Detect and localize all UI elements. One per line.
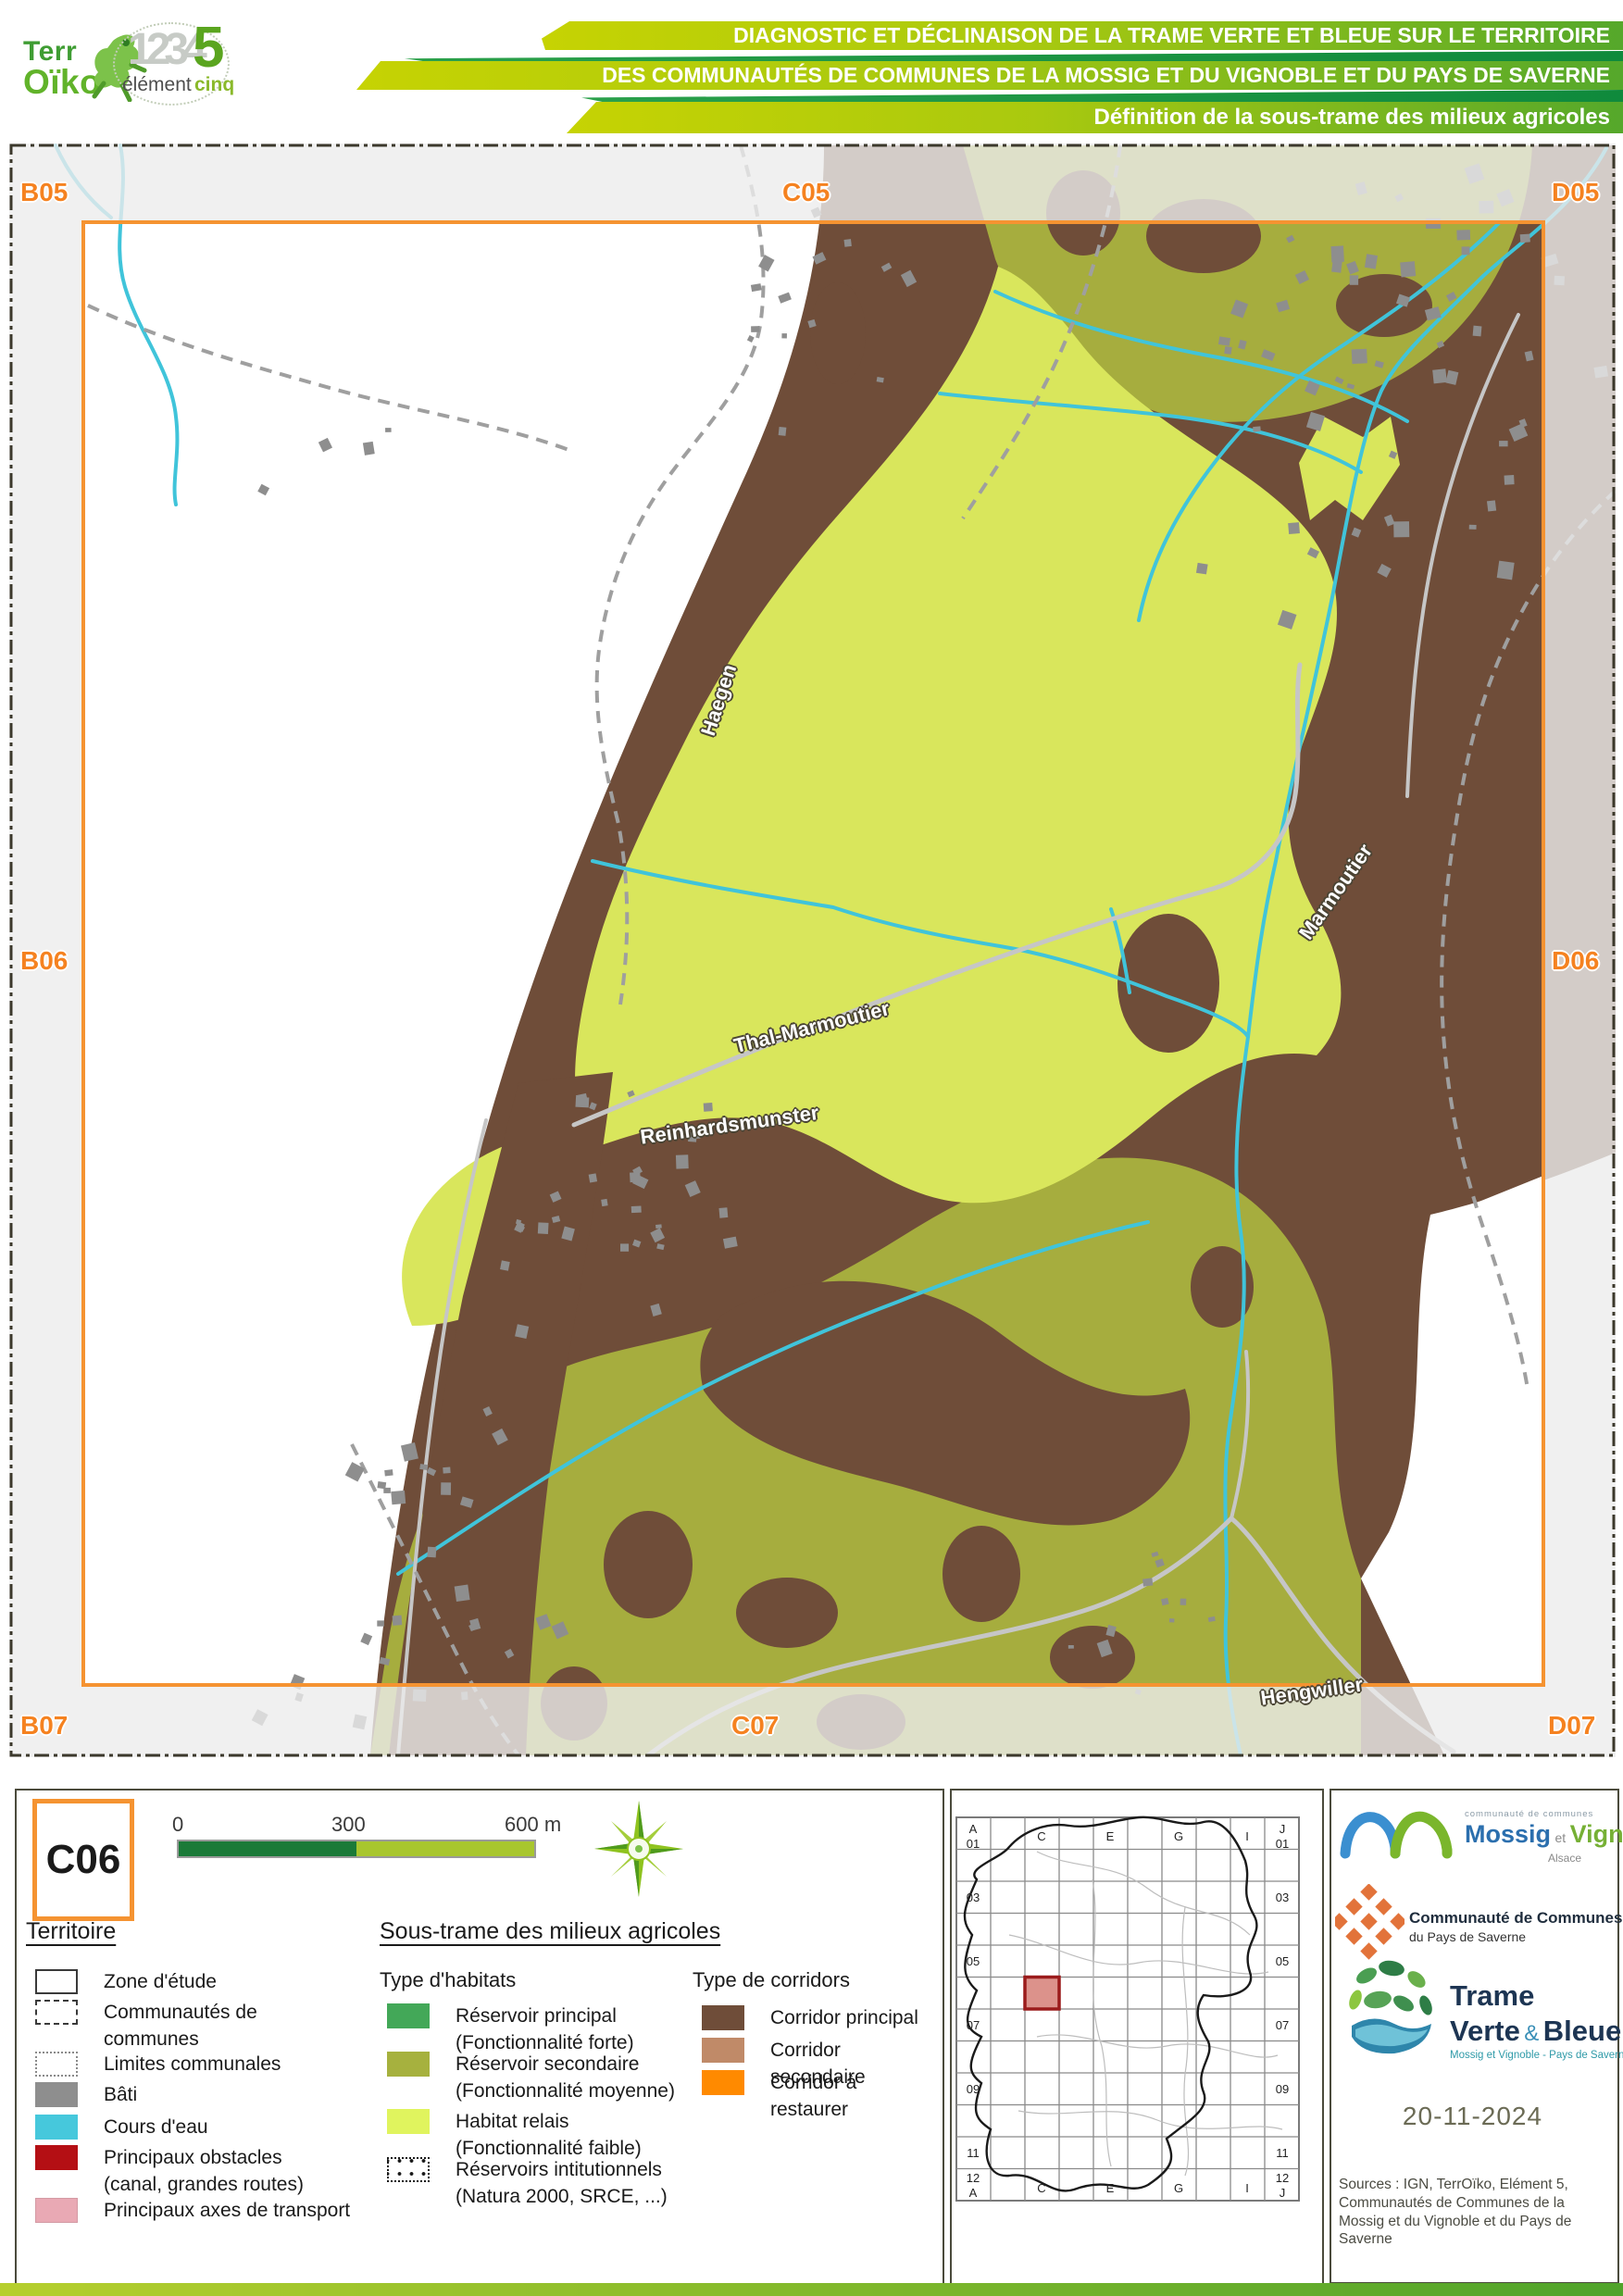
bati-swatch: [35, 2082, 78, 2107]
svg-text:C: C: [1037, 1829, 1045, 1843]
corridors-subheading: Type de corridors: [693, 1968, 850, 1992]
zone-etude-swatch: [35, 1969, 78, 1994]
svg-text:07: 07: [967, 2018, 980, 2032]
tvb-amp: &: [1524, 2021, 1539, 2046]
grid-label-b05: B05: [20, 178, 68, 207]
legend-item-limites: Limites communales: [35, 2052, 350, 2078]
mossig-name: Mossig: [1465, 1820, 1551, 1848]
corridor-principal-swatch: [702, 2005, 744, 2030]
scale-tick-0: 0: [172, 1813, 183, 1837]
svg-text:C: C: [1037, 2181, 1045, 2195]
axes-transport-swatch: [35, 2198, 78, 2223]
tvb-bleue: Bleue: [1543, 2015, 1621, 2047]
legend-item-axes-transport: Principaux axes de transport: [35, 2198, 387, 2225]
reservoir-secondaire-swatch: [387, 2052, 430, 2077]
cours-eau-label: Cours d'eau: [104, 2115, 208, 2141]
svg-text:05: 05: [967, 1954, 980, 1968]
banner-title-3: Définition de la sous-trame des milieux …: [567, 102, 1623, 133]
grid-label-c07: C07: [731, 1711, 779, 1741]
legend-item-habitat-relais: Habitat relais (Fonctionnalité faible): [387, 2109, 683, 2163]
saverne-line2: du Pays de Saverne: [1409, 1929, 1526, 1944]
elementcinq-word1: élément: [122, 74, 192, 96]
legend-item-reservoir-principal: Réservoir principal (Fonctionnalité fort…: [387, 2003, 683, 2057]
obstacles-swatch: [35, 2145, 78, 2170]
legend-item-zone-etude: Zone d'étude: [35, 1969, 350, 1996]
legend-item-reservoirs-institutionnels: Réservoirs intitutionnels (Natura 2000, …: [387, 2157, 683, 2211]
grid-label-b07: B07: [20, 1711, 68, 1741]
svg-text:I: I: [1245, 1829, 1249, 1843]
svg-text:12: 12: [1276, 2171, 1289, 2185]
banner-title-3-text: Définition de la sous-trame des milieux …: [1094, 105, 1623, 131]
tile-code: C06: [46, 1837, 121, 1883]
sources-text: Sources : IGN, TerrOïko, Elément 5, Comm…: [1339, 2176, 1609, 2249]
svg-text:05: 05: [1276, 1954, 1289, 1968]
habitat-relais-label: Habitat relais (Fonctionnalité faible): [456, 2109, 642, 2163]
svg-text:A: A: [969, 2186, 978, 2200]
reservoir-principal-label: Réservoir principal (Fonctionnalité fort…: [456, 2003, 634, 2057]
legend-item-communautes: Communautés de communes: [35, 2000, 313, 2053]
reservoir-secondaire-label: Réservoir secondaire (Fonctionnalité moy…: [456, 2052, 675, 2105]
svg-text:A: A: [969, 1822, 978, 1836]
reservoirs-institutionnels-label: Réservoirs intitutionnels (Natura 2000, …: [456, 2157, 668, 2211]
map-canvas: [9, 143, 1616, 1757]
banner-title-1: DIAGNOSTIC ET DÉCLINAISON DE LA TRAME VE…: [542, 21, 1623, 50]
scale-tick-600: 600 m: [505, 1813, 561, 1837]
corridor-principal-label: Corridor principal: [770, 2005, 918, 2032]
scale-bar-light-segment: [356, 1841, 534, 1856]
svg-text:G: G: [1174, 2181, 1183, 2195]
scale-bar-dark-segment: [179, 1841, 356, 1856]
tvb-logo-icon: [1341, 1955, 1442, 2062]
cours-eau-swatch: [35, 2115, 78, 2140]
inset-highlight-cell: [1025, 1978, 1059, 2010]
legend-item-corridor-principal: Corridor principal: [702, 2005, 933, 2032]
svg-text:E: E: [1106, 1829, 1115, 1843]
svg-text:03: 03: [967, 1890, 980, 1904]
soustrame-heading: Sous-trame des milieux agricoles: [380, 1918, 720, 1945]
tvb-verte: Verte: [1450, 2015, 1520, 2047]
grid-label-d05: D05: [1552, 178, 1599, 207]
scale-bar: [177, 1840, 536, 1858]
svg-text:12: 12: [967, 2171, 980, 2185]
banner-stripe-2: [581, 90, 1623, 102]
mossig-vignoble-logo-icon: [1338, 1805, 1458, 1863]
tvb-subtitle: Mossig et Vignoble - Pays de Saverne: [1450, 2050, 1623, 2061]
territoire-heading: Territoire: [26, 1918, 116, 1945]
map-date: 20-11-2024: [1330, 2102, 1616, 2131]
svg-text:01: 01: [1276, 1837, 1289, 1851]
elementcinq-logo: 1234 5 élément cinq: [120, 17, 231, 106]
elementcinq-word2: cinq: [194, 74, 234, 96]
legend-item-obstacles: Principaux obstacles (canal, grandes rou…: [35, 2145, 368, 2199]
svg-text:E: E: [1106, 2181, 1115, 2195]
legend-item-reservoir-secondaire: Réservoir secondaire (Fonctionnalité moy…: [387, 2052, 683, 2105]
legend-item-corridor-restaurer: Corridor à restaurer: [702, 2070, 933, 2124]
limites-swatch: [35, 2052, 78, 2077]
zone-etude-label: Zone d'étude: [104, 1969, 217, 1996]
svg-text:J: J: [1280, 2186, 1286, 2200]
bati-label: Bâti: [104, 2082, 137, 2109]
footer-bar: [0, 2283, 1623, 2296]
svg-text:09: 09: [967, 2082, 980, 2096]
grid-label-c05: C05: [782, 178, 830, 207]
elementcinq-digits: 1234: [128, 24, 201, 75]
compass-rose-icon: [593, 1801, 685, 1897]
banner-stripe-1: [405, 51, 1623, 61]
banner-title-2-text: DES COMMUNAUTÉS DE COMMUNES DE LA MOSSIG…: [602, 63, 1623, 88]
obstacles-sublabel: (canal, grandes routes): [104, 2172, 304, 2199]
corridor-secondaire-swatch: [702, 2038, 744, 2063]
banner-title-2: DES COMMUNAUTÉS DE COMMUNES DE LA MOSSIG…: [356, 61, 1623, 90]
svg-text:07: 07: [1276, 2018, 1289, 2032]
habitats-subheading: Type d'habitats: [380, 1968, 516, 1992]
habitat-relais-swatch: [387, 2109, 430, 2134]
mossig-small-text: communauté de communes: [1465, 1809, 1593, 1819]
alsace-text: Alsace: [1548, 1852, 1581, 1865]
corridor-restaurer-swatch: [702, 2070, 744, 2095]
limites-label: Limites communales: [104, 2052, 281, 2078]
inset-map: A01 C E G I J01 0303 0505 0707 0909 1111…: [950, 1789, 1320, 2289]
svg-text:03: 03: [1276, 1890, 1289, 1904]
grid-label-b06: B06: [20, 946, 68, 976]
svg-text:01: 01: [967, 1837, 980, 1851]
saverne-line1: Communauté de Communes: [1409, 1909, 1622, 1928]
grid-label-d07: D07: [1548, 1711, 1595, 1741]
map-sheet: Terr Oïko 1234 5 élément cinq DIAGNOSTIC…: [0, 0, 1623, 2296]
legend-item-bati: Bâti: [35, 2082, 350, 2109]
corridor-restaurer-label: Corridor à restaurer: [770, 2070, 933, 2124]
svg-text:J: J: [1280, 1822, 1286, 1836]
svg-text:09: 09: [1276, 2082, 1289, 2096]
scale-tick-300: 300: [331, 1813, 366, 1837]
tile-code-box: C06: [32, 1799, 134, 1921]
grid-label-d06: D06: [1552, 946, 1599, 976]
mossig-et: et: [1554, 1830, 1566, 1845]
svg-text:I: I: [1245, 2181, 1249, 2195]
axes-transport-label: Principaux axes de transport: [104, 2198, 350, 2225]
legend-item-cours-eau: Cours d'eau: [35, 2115, 350, 2141]
reservoirs-institutionnels-swatch: [387, 2157, 430, 2182]
svg-text:11: 11: [1276, 2146, 1289, 2160]
svg-text:G: G: [1174, 1829, 1183, 1843]
svg-text:11: 11: [967, 2146, 980, 2160]
vignoble-name: Vignoble: [1570, 1820, 1623, 1848]
reservoir-principal-swatch: [387, 2003, 430, 2028]
tvb-line1: Trame: [1450, 1979, 1534, 2013]
banner-title-1-text: DIAGNOSTIC ET DÉCLINAISON DE LA TRAME VE…: [733, 23, 1623, 48]
elementcinq-five: 5: [193, 15, 224, 81]
tvb-line2: Verte & Bleue: [1450, 2015, 1621, 2048]
obstacles-label: Principaux obstacles (canal, grandes rou…: [104, 2145, 304, 2199]
mossig-vignoble-wordmark: Mossig et Vignoble: [1465, 1820, 1623, 1849]
communautes-swatch: [35, 2000, 78, 2025]
communautes-label: Communautés de communes: [104, 2000, 280, 2053]
